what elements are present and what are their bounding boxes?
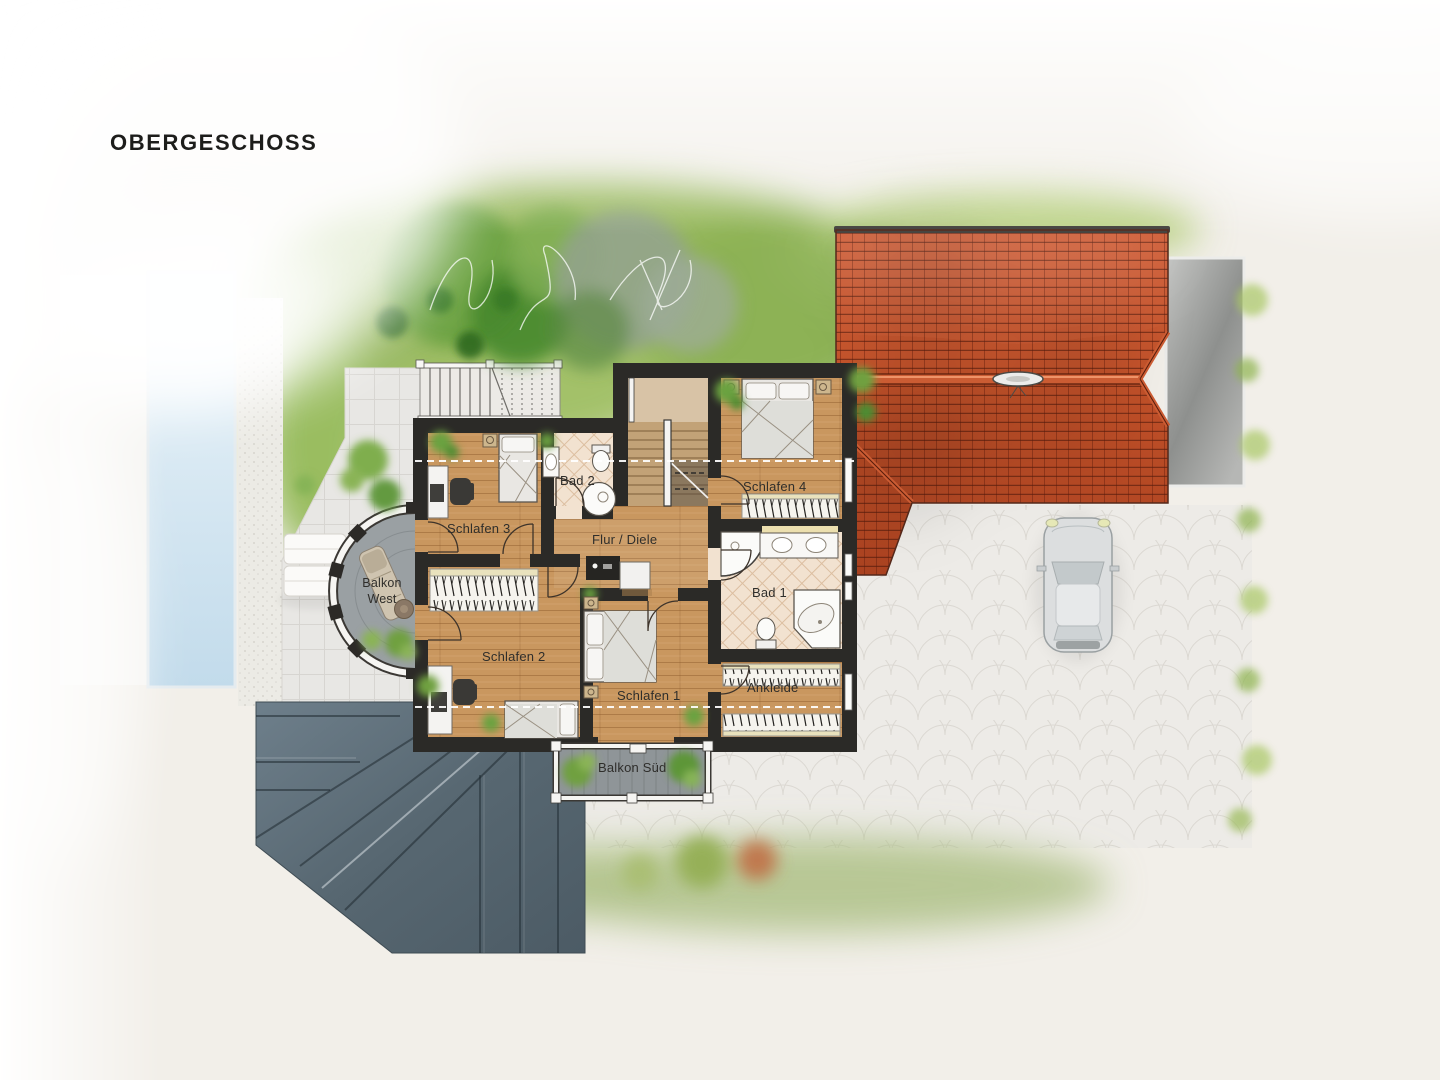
windshield bbox=[1052, 562, 1104, 584]
headlight bbox=[1098, 519, 1110, 527]
room-label-bad-2: Bad 2 bbox=[560, 473, 595, 488]
floorplan-scene: OBERGESCHOSS Schlafen 3 Bad 2 Flur / Die… bbox=[0, 0, 1440, 1080]
room-label-balkon-sued: Balkon Süd bbox=[598, 760, 667, 775]
room-label-schlafen-1: Schlafen 1 bbox=[617, 688, 680, 703]
room-label-balkon-west: Balkon West bbox=[350, 576, 414, 607]
headlight bbox=[1046, 519, 1058, 527]
room-label-schlafen-2: Schlafen 2 bbox=[482, 649, 545, 664]
door-threshold bbox=[630, 744, 646, 753]
room-label-flur-diele: Flur / Diele bbox=[592, 532, 657, 547]
room-label-ankleide: Ankleide bbox=[747, 680, 798, 695]
room-label-bad-1: Bad 1 bbox=[752, 585, 787, 600]
car-roof bbox=[1056, 584, 1100, 626]
exterior-staircase bbox=[416, 360, 562, 420]
car bbox=[1034, 514, 1122, 662]
site-plan-artwork bbox=[0, 0, 1440, 1080]
room-label-schlafen-4: Schlafen 4 bbox=[743, 479, 806, 494]
room-label-schlafen-3: Schlafen 3 bbox=[447, 521, 510, 536]
page-title: OBERGESCHOSS bbox=[110, 130, 317, 156]
floor-plan bbox=[413, 363, 857, 786]
